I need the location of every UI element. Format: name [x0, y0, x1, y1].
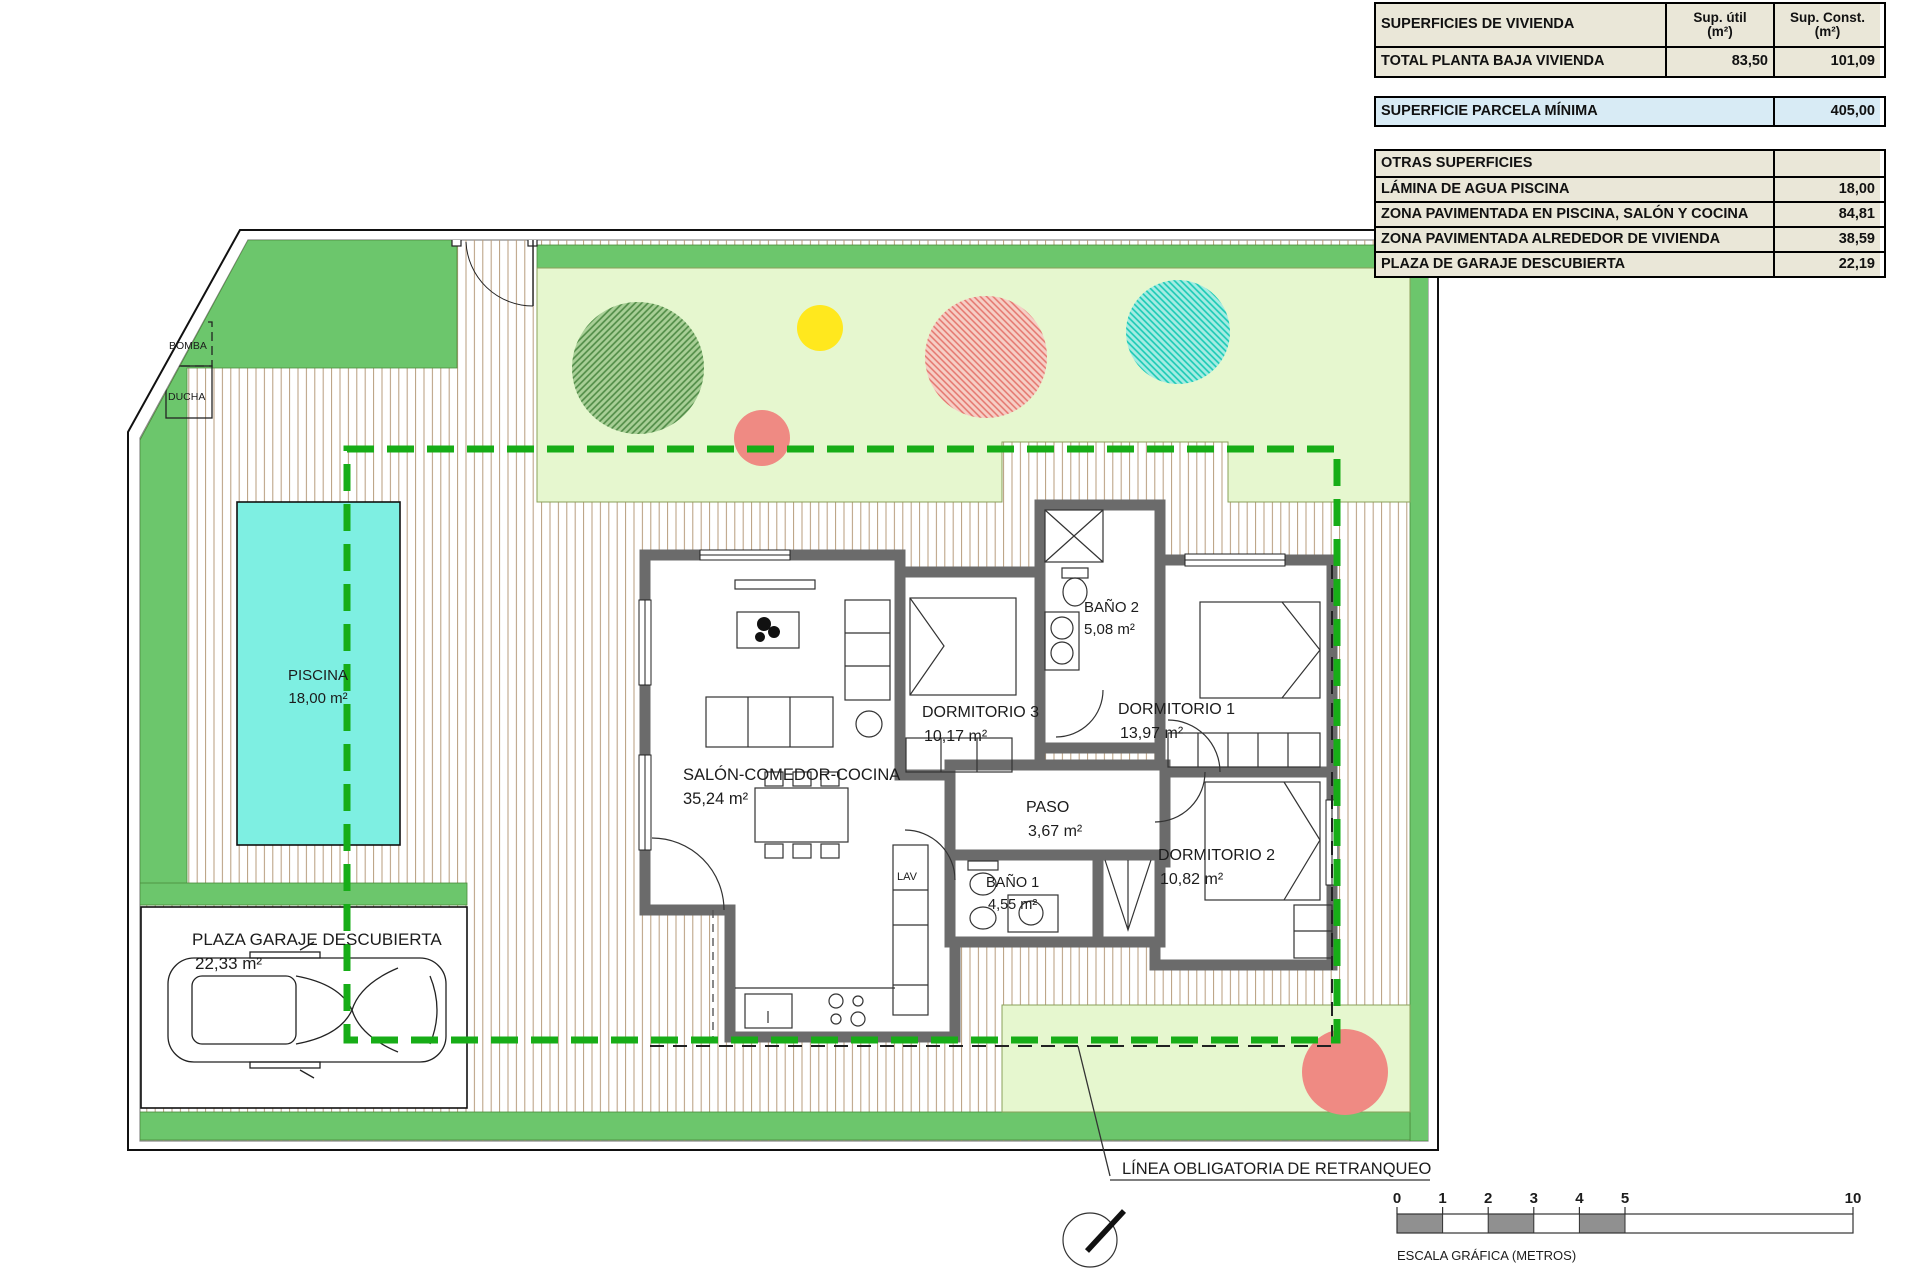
dorm1-area: 13,97 m²: [1120, 725, 1184, 742]
paso-label: PASO: [1026, 799, 1069, 816]
row-value: 18,00: [1773, 178, 1880, 201]
row-label: ZONA PAVIMENTADA EN PISCINA, SALÓN Y COC…: [1376, 203, 1773, 226]
table-header-row: OTRAS SUPERFICIES: [1376, 151, 1884, 176]
north-indicator: [1063, 1211, 1124, 1267]
north-circle: [1063, 1213, 1117, 1267]
row-value: 22,19: [1773, 253, 1880, 276]
dorm3-label: DORMITORIO 3: [922, 704, 1039, 721]
scale-ticks: 0 1 2 3 4 5 10: [1393, 1190, 1862, 1207]
col-header-line: (m²): [1815, 25, 1841, 39]
row-value-util: 83,50: [1665, 48, 1773, 76]
garage-label: PLAZA GARAJE DESCUBIERTA: [192, 930, 442, 949]
scale-tick: 0: [1393, 1190, 1401, 1207]
table-row: ZONA PAVIMENTADA ALREDEDOR DE VIVIENDA 3…: [1376, 226, 1884, 251]
scale-caption: ESCALA GRÁFICA (METROS): [1397, 1248, 1576, 1263]
row-value: 38,59: [1773, 228, 1880, 251]
scale-tick: 1: [1438, 1190, 1446, 1207]
table-row: ZONA PAVIMENTADA EN PISCINA, SALÓN Y COC…: [1376, 201, 1884, 226]
row-label: ZONA PAVIMENTADA ALREDEDOR DE VIVIENDA: [1376, 228, 1773, 251]
lav-label: LAV: [897, 871, 918, 883]
north-needle-icon: [1087, 1211, 1124, 1251]
bano1-label: BAÑO 1: [986, 874, 1039, 891]
table-row: SUPERFICIE PARCELA MÍNIMA 405,00: [1376, 98, 1884, 125]
paso-area: 3,67 m²: [1028, 823, 1083, 840]
scale-tick: 4: [1575, 1190, 1584, 1207]
salon-label: SALÓN-COMEDOR-COCINA: [683, 765, 900, 784]
tree-red-icon: [925, 296, 1047, 418]
tree-green-icon: [572, 302, 704, 434]
bano1-area: 4,55 m²: [988, 897, 1037, 913]
dorm2-label: DORMITORIO 2: [1158, 847, 1275, 864]
row-value: 405,00: [1773, 98, 1880, 125]
bano2-label: BAÑO 2: [1084, 599, 1139, 616]
table-superficies-vivienda: SUPERFICIES DE VIVIENDA Sup. útil (m²) S…: [1374, 2, 1886, 78]
col-header-line: Sup. Const.: [1790, 11, 1865, 25]
tree-cyan-icon: [1126, 280, 1230, 384]
scale-tick: 3: [1530, 1190, 1538, 1207]
row-label: SUPERFICIE PARCELA MÍNIMA: [1376, 98, 1773, 125]
garage-area: 22,33 m²: [195, 954, 262, 973]
grass-bottom-band: [140, 1112, 1410, 1140]
bomba-label: BOMBA: [169, 340, 207, 352]
row-label: TOTAL PLANTA BAJA VIVIENDA: [1376, 48, 1665, 76]
col-header-otras: OTRAS SUPERFICIES: [1376, 151, 1773, 176]
setback-label: LÍNEA OBLIGATORIA DE RETRANQUEO: [1122, 1159, 1431, 1178]
col-header-sup-util: Sup. útil (m²): [1665, 4, 1773, 46]
row-value: 84,81: [1773, 203, 1880, 226]
salon-area: 35,24 m²: [683, 790, 749, 808]
row-label: PLAZA DE GARAJE DESCUBIERTA: [1376, 253, 1773, 276]
row-label: LÁMINA DE AGUA PISCINA: [1376, 178, 1773, 201]
col-header-superficies: SUPERFICIES DE VIVIENDA: [1376, 4, 1665, 46]
room-dormitorio2: [1155, 772, 1332, 965]
table-row: LÁMINA DE AGUA PISCINA 18,00: [1376, 176, 1884, 201]
table-parcela-minima: SUPERFICIE PARCELA MÍNIMA 405,00: [1374, 96, 1886, 127]
grass-pool-cap: [140, 883, 467, 905]
table-header-row: SUPERFICIES DE VIVIENDA Sup. útil (m²) S…: [1376, 4, 1884, 46]
scale-tick: 5: [1621, 1190, 1629, 1207]
row-value-const: 101,09: [1773, 48, 1880, 76]
scale-tick: 2: [1484, 1190, 1492, 1207]
floor-plan-sheet: PISCINA 18,00 m² SALÓN-COMEDOR-COCINA 35…: [0, 0, 1920, 1280]
surface-tables: SUPERFICIES DE VIVIENDA Sup. útil (m²) S…: [1374, 2, 1886, 278]
bano2-area: 5,08 m²: [1084, 621, 1135, 638]
scale-bar: 0 1 2 3 4 5 10 ESCALA GRÁFICA (METROS): [1393, 1190, 1862, 1263]
table-row: TOTAL PLANTA BAJA VIVIENDA 83,50 101,09: [1376, 46, 1884, 76]
dorm3-area: 10,17 m²: [924, 728, 988, 745]
row-value: [1773, 151, 1880, 176]
pool-area: 18,00 m²: [288, 690, 347, 707]
col-header-line: Sup. útil: [1693, 11, 1746, 25]
ducha-label: DUCHA: [168, 391, 205, 403]
table-row: PLAZA DE GARAJE DESCUBIERTA 22,19: [1376, 251, 1884, 276]
tree-coral-small-icon: [734, 410, 790, 466]
dorm2-area: 10,82 m²: [1160, 871, 1224, 888]
pool-label: PISCINA: [288, 667, 348, 684]
dorm1-label: DORMITORIO 1: [1118, 701, 1235, 718]
table-otras-superficies: OTRAS SUPERFICIES LÁMINA DE AGUA PISCINA…: [1374, 149, 1886, 278]
col-header-sup-const: Sup. Const. (m²): [1773, 4, 1880, 46]
grass-top-band: [537, 245, 1433, 268]
col-header-line: (m²): [1707, 25, 1733, 39]
tree-yellow-icon: [797, 305, 843, 351]
room-dormitorio1: [1160, 560, 1332, 772]
scale-tick: 10: [1845, 1190, 1862, 1207]
